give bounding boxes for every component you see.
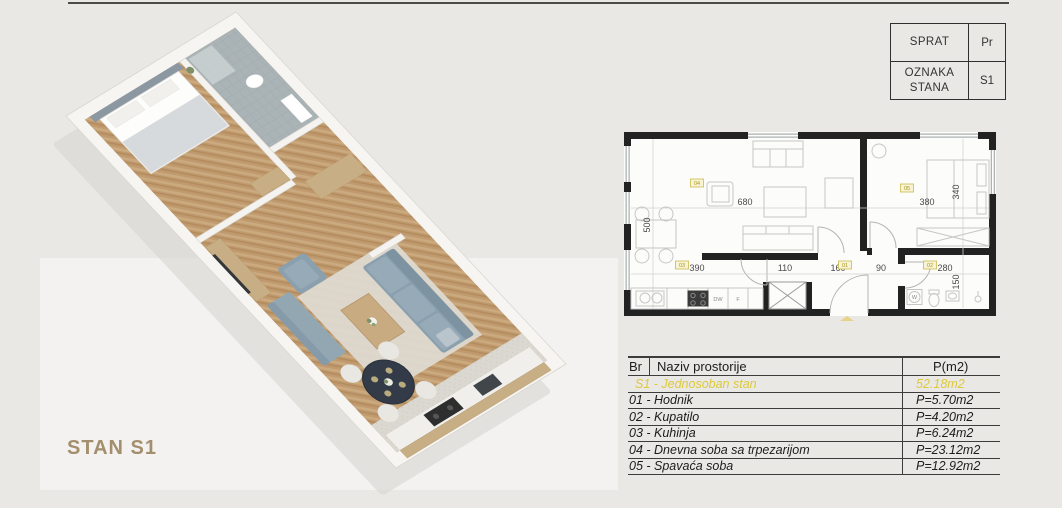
room-area: P=4.20m2	[902, 409, 1000, 425]
room-area: P=23.12m2	[902, 442, 1000, 458]
header-area: P(m2)	[902, 358, 1000, 375]
table-row: 03 - Kuhinja P=6.24m2	[628, 426, 1000, 443]
room-name: 03 - Kuhinja	[628, 426, 902, 440]
room-area: P=5.70m2	[902, 393, 1000, 409]
room-name: 04 - Dnevna soba sa trpezarijom	[628, 443, 902, 457]
table-row: 01 - Hodnik P=5.70m2	[628, 393, 1000, 410]
floor-value: Pr	[968, 24, 1005, 61]
room-area: P=12.92m2	[902, 459, 1000, 475]
dim-living-width: 680	[737, 197, 752, 207]
areas-table: Br Naziv prostorije P(m2) S1 - Jednosoba…	[628, 356, 1000, 475]
tag-kitchen: 03	[676, 261, 689, 269]
areas-header-row: Br Naziv prostorije P(m2)	[628, 358, 1000, 376]
summary-name: S1 - Jednosoban stan	[628, 377, 902, 391]
info-row-floor: SPRAT Pr	[891, 24, 1005, 62]
header-br: Br	[628, 358, 650, 375]
tag-bedroom: 05	[901, 184, 914, 192]
svg-text:01: 01	[842, 263, 848, 269]
svg-text:05: 05	[904, 186, 910, 192]
floor-label: SPRAT	[891, 24, 968, 61]
dim-bedroom-height: 340	[951, 184, 961, 199]
dim-hall-a: 110	[778, 263, 792, 273]
svg-text:04: 04	[694, 181, 700, 187]
svg-text:03: 03	[679, 263, 685, 269]
dishwasher-label: DW	[713, 297, 723, 303]
info-table: SPRAT Pr OZNAKA STANA S1	[890, 23, 1006, 100]
room-name: 05 - Spavaća soba	[628, 459, 902, 473]
tag-living: 04	[691, 179, 704, 187]
room-name: 02 - Kupatilo	[628, 410, 902, 424]
table-row: 05 - Spavaća soba P=12.92m2	[628, 459, 1000, 476]
dim-kitchen-width: 390	[689, 263, 704, 273]
table-row: 04 - Dnevna soba sa trpezarijom P=23.12m…	[628, 442, 1000, 459]
tag-bathroom: 02	[924, 261, 937, 269]
plan-2d: 680 380 500 340 390 110 160 90 280 150 0…	[622, 130, 998, 326]
dim-bedroom-width: 380	[919, 197, 934, 207]
summary-area: 52.18m2	[902, 376, 1000, 392]
tag-hallway: 01	[839, 261, 852, 269]
washer-label: W	[912, 295, 918, 301]
entrance-arrow-icon	[840, 316, 854, 321]
dim-hall-c: 90	[876, 263, 886, 273]
header-name: Naziv prostorije	[650, 359, 902, 374]
dim-living-height: 500	[642, 217, 652, 232]
info-row-unit: OZNAKA STANA S1	[891, 62, 1005, 99]
summary-row: S1 - Jednosoban stan 52.18m2	[628, 376, 1000, 393]
unit-label: OZNAKA STANA	[891, 62, 968, 99]
render-3d	[28, 4, 594, 504]
apartment-title: STAN S1	[67, 437, 157, 460]
room-name: 01 - Hodnik	[628, 393, 902, 407]
dim-bath-height: 150	[951, 274, 961, 289]
room-area: P=6.24m2	[902, 426, 1000, 442]
table-row: 02 - Kupatilo P=4.20m2	[628, 409, 1000, 426]
svg-text:02: 02	[927, 263, 933, 269]
unit-value: S1	[968, 62, 1005, 99]
dim-bath-width: 280	[937, 263, 952, 273]
plan-sheet: STAN S1 SPRAT Pr OZNAKA STANA S1	[0, 0, 1062, 508]
